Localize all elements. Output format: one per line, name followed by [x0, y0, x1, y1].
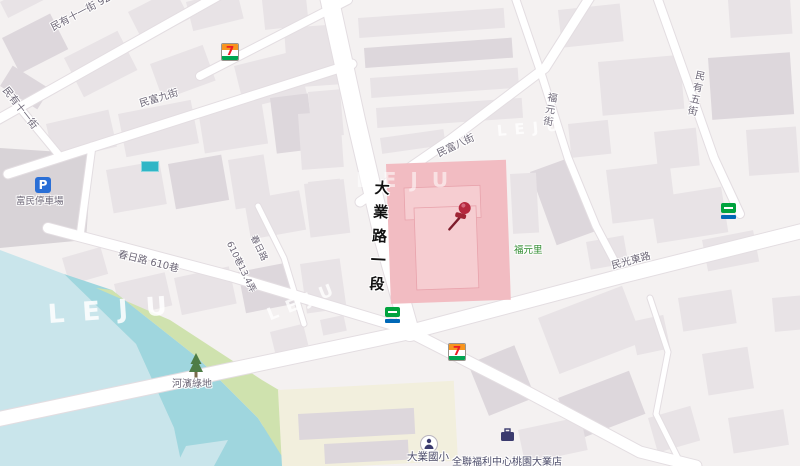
seven-eleven-icon[interactable]: 7	[448, 343, 466, 361]
familymart-stripe	[388, 311, 397, 313]
familymart-stripe	[724, 207, 733, 209]
seven-eleven-digit: 7	[222, 44, 238, 60]
store-icon[interactable]	[501, 429, 514, 441]
school-label: 大業國小	[407, 452, 449, 463]
familymart-blue-block	[721, 215, 736, 219]
map-canvas[interactable]: LEJU LEJU LEJU LEJU 民有十一街 92巷 民有十一街 民富九街…	[0, 0, 800, 466]
village-label: 福元里	[514, 246, 543, 256]
park-label: 河濱綠地	[172, 380, 212, 390]
seven-eleven-digit: 7	[449, 344, 465, 360]
seven-eleven-icon[interactable]: 7	[221, 43, 239, 61]
storefront-sign-icon[interactable]	[141, 161, 159, 172]
map-base-layer	[0, 0, 800, 466]
familymart-icon[interactable]	[721, 203, 736, 220]
parking-icon[interactable]: P	[35, 177, 51, 193]
familymart-blue-block	[385, 319, 400, 323]
school-icon[interactable]	[421, 436, 438, 453]
parking-label: 富民停車場	[16, 197, 64, 207]
familymart-icon[interactable]	[385, 307, 400, 324]
store-label: 全聯福利中心桃園大業店	[452, 458, 562, 466]
